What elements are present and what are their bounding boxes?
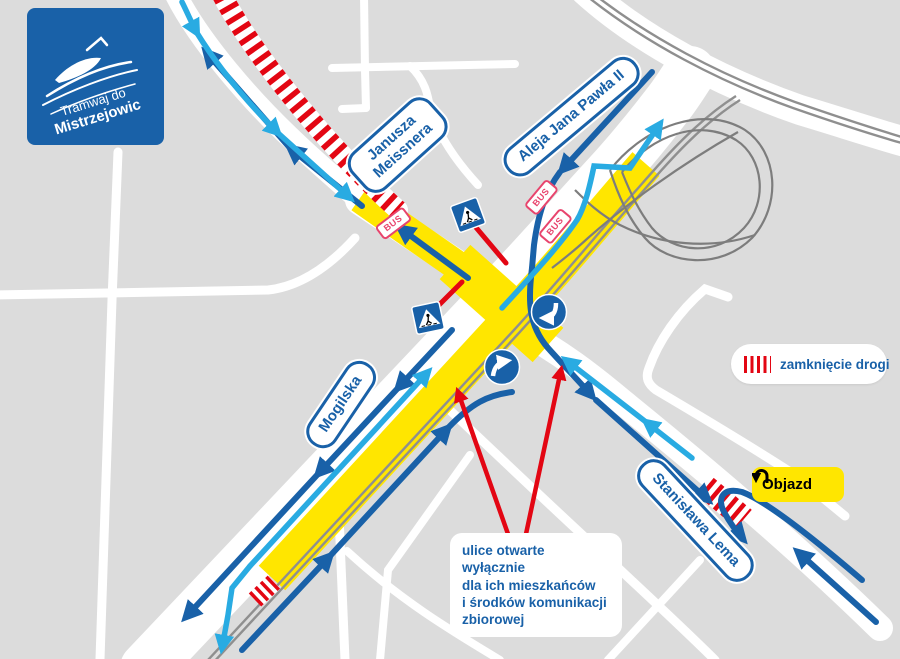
legend-road-closure: zamknięcie drogi bbox=[731, 344, 887, 384]
detour-map: Tramwaj do Mistrzejowic Janusza Meissner… bbox=[0, 0, 900, 659]
u-turn-icon bbox=[752, 467, 772, 487]
pedestrian-crossing-sign-icon-lower bbox=[411, 301, 444, 334]
tramwaj-logo: Tramwaj do Mistrzejowic bbox=[27, 8, 164, 145]
open-streets-annotation: ulice otwarte wyłącznie dla ich mieszkań… bbox=[450, 533, 622, 637]
bear-right-sign-icon bbox=[485, 350, 520, 385]
legend-label: zamknięcie drogi bbox=[780, 357, 890, 372]
pedestrian-crossing-sign-icon-upper bbox=[450, 197, 486, 233]
detour-badge: Objazd bbox=[752, 467, 844, 502]
turn-left-sign-icon bbox=[532, 295, 567, 330]
road-closure-stripes-icon bbox=[744, 356, 771, 373]
